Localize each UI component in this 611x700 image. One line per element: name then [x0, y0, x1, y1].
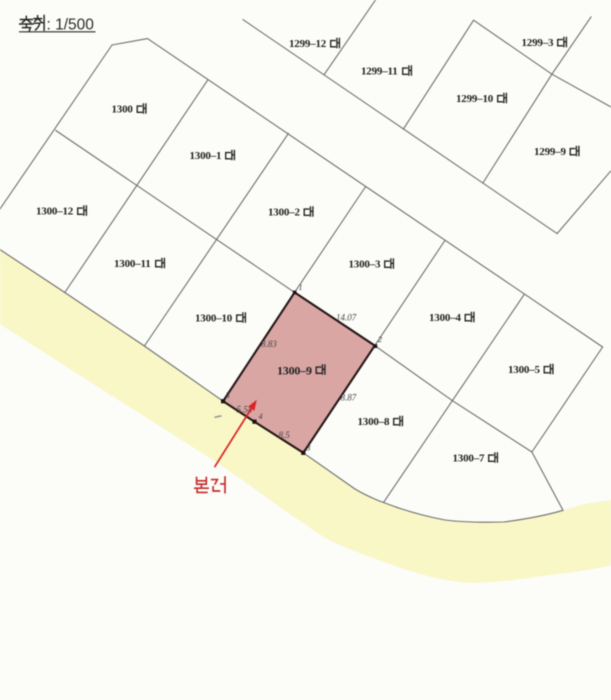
svg-text:1300–11: 1300–11 — [114, 258, 151, 270]
svg-text:1300–3: 1300–3 — [349, 259, 382, 271]
svg-text:1299–3: 1299–3 — [522, 37, 555, 49]
svg-text:1299–10: 1299–10 — [456, 93, 494, 105]
svg-text:3: 3 — [306, 444, 311, 453]
svg-text:1: 1 — [299, 283, 303, 292]
svg-text:8.5: 8.5 — [279, 430, 291, 440]
svg-text:5: 5 — [226, 391, 230, 400]
svg-text:: 1/500: : 1/500 — [47, 17, 95, 34]
svg-text:1300–12: 1300–12 — [36, 206, 74, 218]
svg-text:2: 2 — [378, 335, 382, 344]
svg-text:1300–1: 1300–1 — [190, 150, 222, 162]
svg-text:1300–4: 1300–4 — [429, 312, 462, 324]
svg-text:1300–7: 1300–7 — [453, 453, 486, 465]
svg-text:1300–8: 1300–8 — [358, 416, 391, 428]
svg-text:8.83: 8.83 — [261, 339, 277, 349]
svg-text:1299–12: 1299–12 — [289, 38, 327, 50]
svg-text:4: 4 — [259, 412, 263, 421]
svg-text:14.07: 14.07 — [336, 313, 357, 323]
svg-text:8.87: 8.87 — [341, 393, 357, 403]
svg-text:1300–5: 1300–5 — [508, 364, 541, 376]
svg-text:1299–11: 1299–11 — [361, 66, 398, 78]
svg-text:1300–9: 1300–9 — [277, 364, 312, 378]
svg-text:1299–9: 1299–9 — [534, 146, 567, 158]
svg-text:1300–2: 1300–2 — [268, 207, 301, 219]
svg-text:1300–10: 1300–10 — [195, 313, 233, 325]
svg-text:1300: 1300 — [112, 104, 134, 116]
